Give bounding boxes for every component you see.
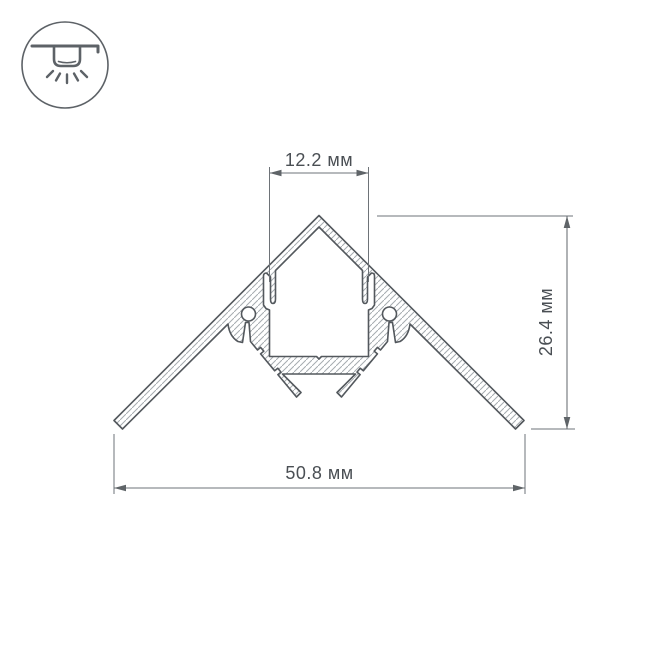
light-rays: [47, 71, 87, 83]
ceiling-light-icon: [22, 22, 108, 108]
profile-cross-section: [114, 216, 524, 430]
technical-drawing-page: 12.2 мм 26.4 мм 50.8 мм: [0, 0, 650, 650]
ceiling-line: [32, 46, 98, 52]
dimension-label-top-width: 12.2 мм: [285, 150, 353, 170]
technical-drawing: 12.2 мм 26.4 мм 50.8 мм: [0, 0, 650, 650]
dimension-label-bottom-width: 50.8 мм: [285, 463, 353, 483]
lamp-inner-line: [59, 62, 76, 63]
dimension-label-height: 26.4 мм: [536, 288, 556, 356]
dimension-bottom-width: 50.8 мм: [114, 434, 525, 494]
